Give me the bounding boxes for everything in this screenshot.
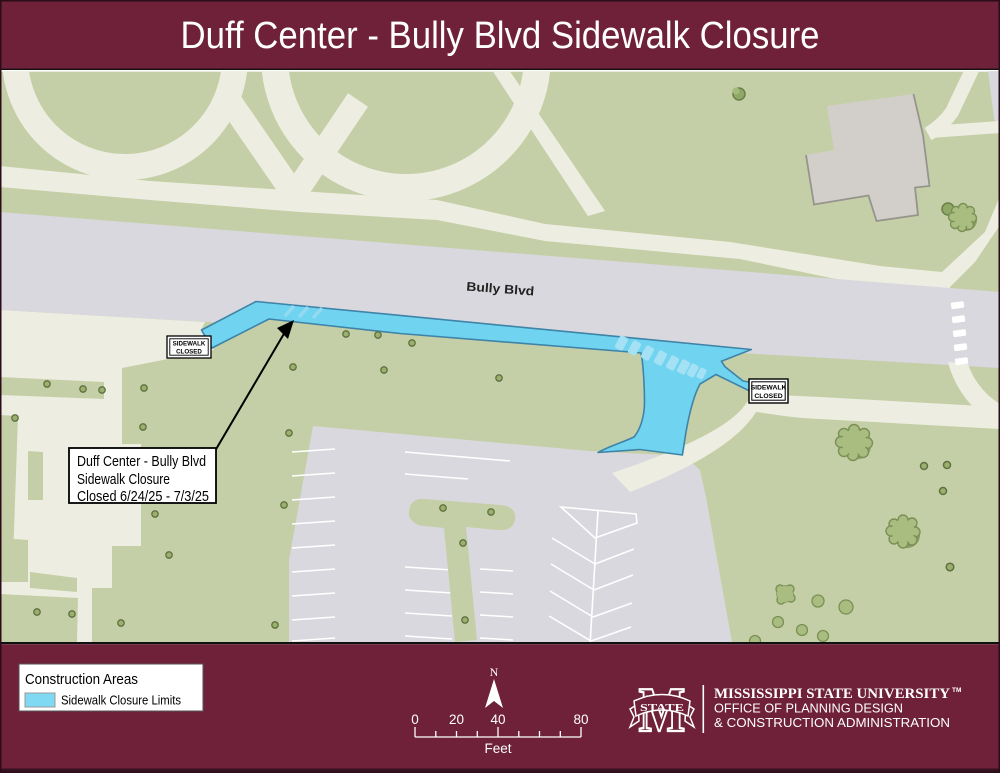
- svg-text:Feet: Feet: [484, 741, 511, 756]
- svg-text:Closed 6/24/25 - 7/3/25: Closed 6/24/25 - 7/3/25: [77, 488, 209, 505]
- svg-text:OFFICE OF PLANNING DESIGN: OFFICE OF PLANNING DESIGN: [714, 701, 903, 716]
- svg-text:SIDEWALK: SIDEWALK: [173, 341, 206, 348]
- svg-text:CLOSED: CLOSED: [754, 393, 782, 400]
- svg-text:SIDEWALK: SIDEWALK: [751, 385, 787, 392]
- svg-text:CLOSED: CLOSED: [176, 349, 202, 356]
- svg-text:N: N: [490, 665, 499, 679]
- svg-text:Sidewalk Closure Limits: Sidewalk Closure Limits: [61, 694, 181, 708]
- svg-text:Duff Center - Bully Blvd Sidew: Duff Center - Bully Blvd Sidewalk Closur…: [181, 15, 820, 57]
- svg-text:40: 40: [490, 712, 505, 727]
- svg-text:80: 80: [573, 712, 588, 727]
- svg-text:TM: TM: [952, 687, 961, 694]
- svg-text:0: 0: [411, 712, 419, 727]
- svg-text:20: 20: [449, 712, 464, 727]
- svg-text:Construction Areas: Construction Areas: [25, 672, 138, 688]
- svg-text:& CONSTRUCTION ADMINISTRATION: & CONSTRUCTION ADMINISTRATION: [714, 715, 950, 730]
- svg-text:STATE: STATE: [640, 703, 684, 714]
- svg-text:Duff Center - Bully Blvd: Duff Center - Bully Blvd: [77, 453, 206, 470]
- svg-text:Sidewalk Closure: Sidewalk Closure: [77, 471, 170, 488]
